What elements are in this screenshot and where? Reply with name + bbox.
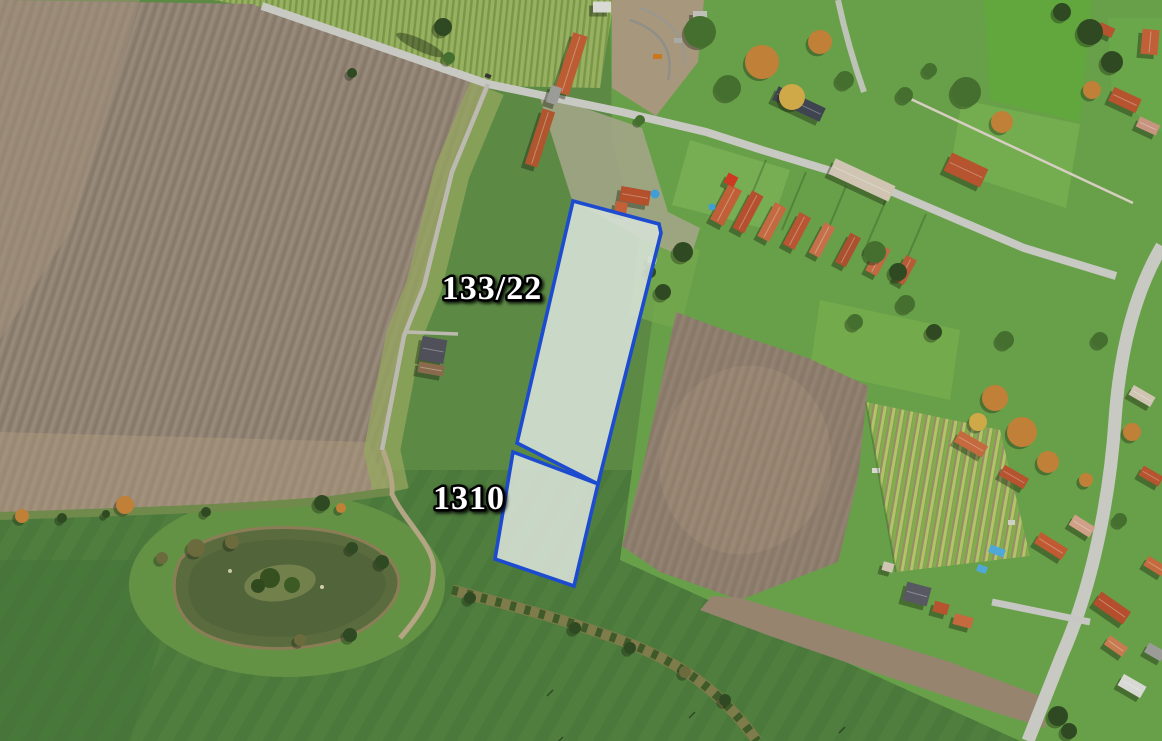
tree [715, 75, 741, 101]
tree [15, 509, 29, 523]
tree [655, 284, 671, 300]
track-branch [406, 332, 458, 334]
tree [156, 552, 168, 564]
tree [1053, 3, 1071, 21]
tree [673, 242, 693, 262]
tree [336, 503, 346, 513]
tree [982, 385, 1008, 411]
tree [1077, 19, 1103, 45]
tree [1061, 723, 1077, 739]
tree [294, 634, 306, 646]
tree [1048, 706, 1068, 726]
tree [347, 68, 357, 78]
excavator [653, 54, 662, 59]
tree [864, 241, 886, 263]
tree [1007, 417, 1037, 447]
building [593, 2, 611, 13]
tree [991, 111, 1013, 133]
pool [709, 204, 716, 211]
building [419, 336, 448, 364]
tree [464, 592, 476, 604]
tree [375, 555, 389, 569]
tree [1123, 423, 1141, 441]
pool [651, 190, 660, 199]
tree [201, 507, 211, 517]
tree [187, 539, 205, 557]
tree [951, 77, 981, 107]
parcel-label-133-22: 133/22 [442, 270, 542, 307]
tree [569, 622, 581, 634]
tree [684, 16, 716, 48]
tree [969, 413, 987, 431]
tree [314, 495, 330, 511]
tree [926, 324, 942, 340]
tree [346, 542, 358, 554]
tree [443, 52, 455, 64]
tree [1083, 81, 1101, 99]
tree [897, 295, 915, 313]
tree [343, 628, 357, 642]
tree [996, 331, 1014, 349]
tree [719, 694, 731, 706]
tree [897, 87, 913, 103]
parcel-label-1310: 1310 [433, 480, 505, 517]
tree [1079, 473, 1093, 487]
tree [1092, 332, 1108, 348]
tree [1037, 451, 1059, 473]
tree [679, 666, 691, 678]
tree [889, 263, 907, 281]
tree [836, 71, 854, 89]
building [1140, 29, 1159, 55]
aerial-map-canvas: 133/22 1310 [0, 0, 1162, 741]
tree [225, 535, 239, 549]
tree [102, 510, 110, 518]
tree [847, 314, 863, 330]
tree [923, 63, 937, 77]
tree [745, 45, 779, 79]
tree [808, 30, 832, 54]
tree [624, 642, 636, 654]
tree [57, 513, 67, 523]
tree [1113, 513, 1127, 527]
aerial-map-view: 133/22 1310 [0, 0, 1162, 741]
tree [779, 84, 805, 110]
tree [1101, 51, 1123, 73]
tree [635, 115, 645, 125]
tree [116, 496, 134, 514]
tree [434, 18, 452, 36]
